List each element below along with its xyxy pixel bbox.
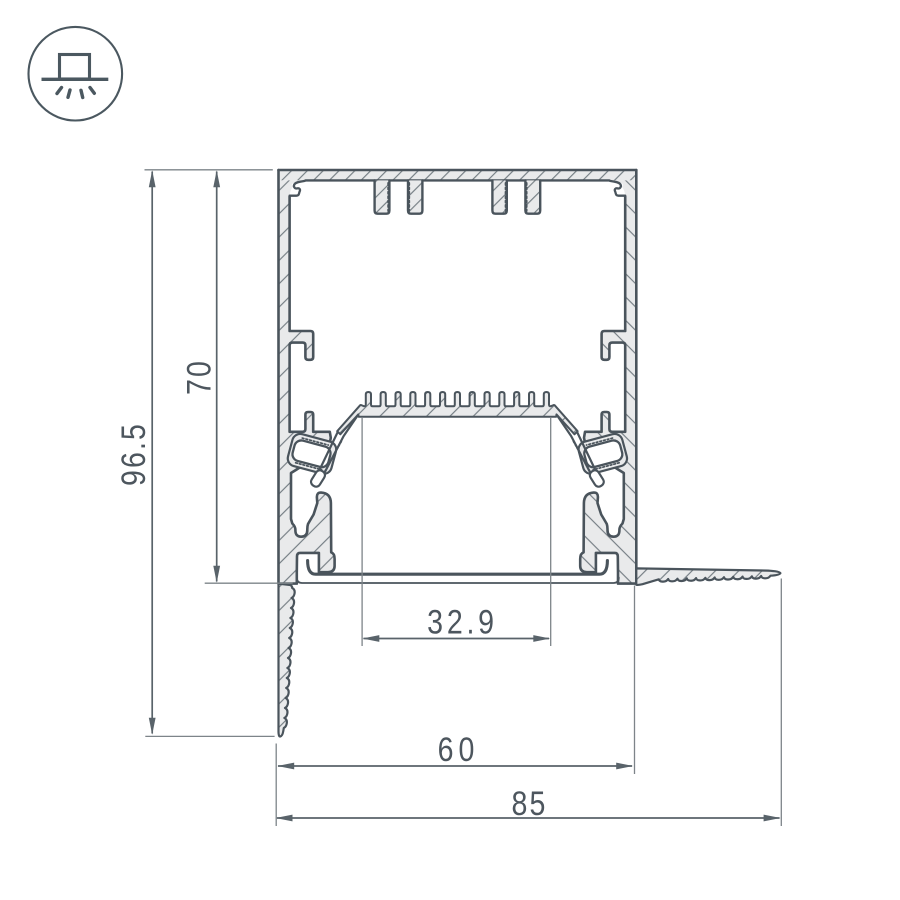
svg-text:70: 70 <box>180 359 218 395</box>
svg-text:96.5: 96.5 <box>115 422 153 486</box>
svg-text:85: 85 <box>512 785 548 823</box>
svg-text:60: 60 <box>438 731 480 769</box>
svg-text:32.9: 32.9 <box>427 603 498 641</box>
